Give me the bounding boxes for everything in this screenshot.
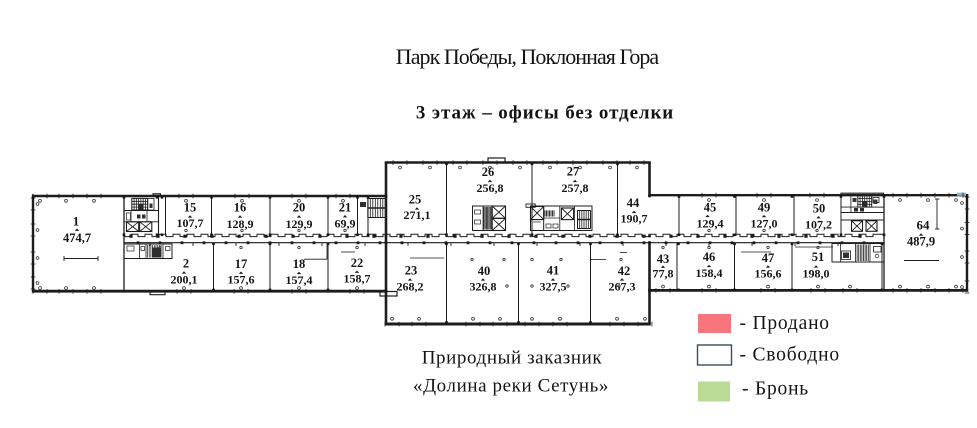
svg-text:42: 42 — [618, 264, 631, 278]
svg-text:200,1: 200,1 — [171, 273, 198, 287]
svg-text:158,7: 158,7 — [344, 272, 371, 286]
svg-text:- Продано: - Продано — [740, 313, 830, 334]
svg-text:157,6: 157,6 — [228, 273, 255, 287]
svg-text:267,3: 267,3 — [609, 280, 636, 294]
svg-text:474,7: 474,7 — [63, 231, 91, 245]
svg-text:Парк Победы, Поклонная Гора: Парк Победы, Поклонная Гора — [396, 44, 660, 69]
svg-text:190,7: 190,7 — [621, 212, 648, 226]
svg-text:23: 23 — [405, 264, 418, 278]
svg-text:271,1: 271,1 — [404, 208, 431, 222]
svg-text:327,5: 327,5 — [540, 280, 567, 294]
svg-text:2: 2 — [183, 257, 189, 271]
svg-text:256,8: 256,8 — [477, 181, 504, 195]
svg-text:44: 44 — [627, 196, 640, 210]
svg-text:127,0: 127,0 — [751, 217, 778, 231]
svg-text:25: 25 — [409, 193, 422, 207]
svg-text:21: 21 — [339, 201, 352, 215]
svg-text:47: 47 — [762, 251, 775, 265]
svg-text:- Бронь: - Бронь — [742, 379, 809, 400]
svg-text:3 этаж – офисы без отделки: 3 этаж – офисы без отделки — [416, 103, 674, 124]
svg-text:17: 17 — [235, 257, 248, 271]
svg-text:129,9: 129,9 — [286, 217, 313, 231]
svg-text:257,8: 257,8 — [562, 181, 589, 195]
svg-text:268,2: 268,2 — [397, 280, 424, 294]
svg-text:157,4: 157,4 — [286, 273, 313, 287]
svg-text:49: 49 — [758, 201, 771, 215]
svg-text:«Долина реки Сетунь»: «Долина реки Сетунь» — [413, 376, 609, 397]
svg-text:- Свободно: - Свободно — [740, 345, 840, 366]
svg-text:46: 46 — [703, 250, 716, 264]
svg-text:107,2: 107,2 — [805, 218, 832, 232]
svg-text:43: 43 — [657, 252, 670, 266]
svg-text:40: 40 — [478, 264, 491, 278]
svg-text:18: 18 — [293, 257, 306, 271]
svg-text:41: 41 — [547, 264, 560, 278]
svg-text:129,4: 129,4 — [697, 217, 724, 231]
svg-text:16: 16 — [234, 201, 247, 215]
svg-text:64: 64 — [917, 218, 931, 233]
svg-text:26: 26 — [482, 165, 495, 179]
svg-text:22: 22 — [351, 256, 364, 270]
svg-text:128,9: 128,9 — [227, 217, 254, 231]
svg-text:77,8: 77,8 — [653, 267, 674, 281]
svg-text:45: 45 — [704, 201, 717, 215]
svg-text:198,0: 198,0 — [803, 267, 830, 281]
svg-text:487,9: 487,9 — [907, 235, 935, 249]
svg-text:20: 20 — [293, 201, 306, 215]
svg-text:Природный заказник: Природный заказник — [422, 348, 603, 369]
svg-text:50: 50 — [813, 202, 826, 216]
svg-text:156,6: 156,6 — [755, 267, 782, 281]
svg-text:15: 15 — [184, 201, 197, 215]
svg-text:51: 51 — [812, 250, 825, 264]
svg-text:326,8: 326,8 — [470, 280, 497, 294]
svg-text:27: 27 — [567, 165, 580, 179]
svg-text:158,4: 158,4 — [696, 266, 723, 280]
svg-text:69,9: 69,9 — [335, 217, 356, 231]
svg-text:107,7: 107,7 — [177, 216, 204, 230]
svg-text:1: 1 — [73, 214, 80, 229]
